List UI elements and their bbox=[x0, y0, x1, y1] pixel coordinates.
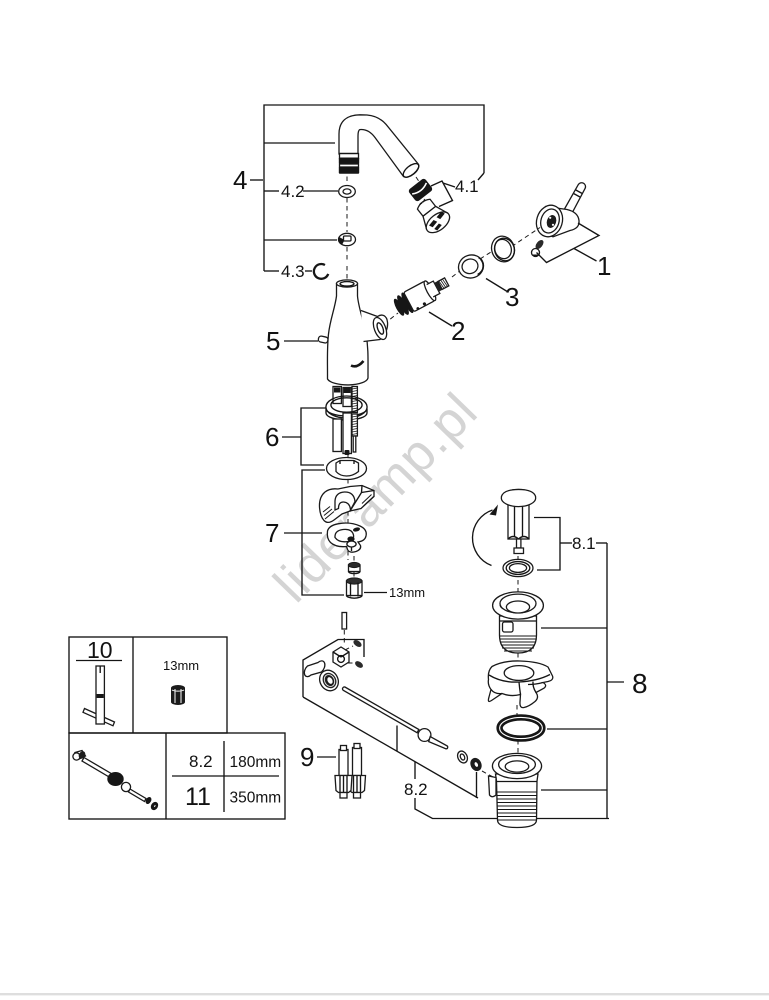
svg-text:1: 1 bbox=[597, 251, 611, 281]
svg-text:5: 5 bbox=[266, 326, 280, 356]
svg-text:3: 3 bbox=[505, 282, 519, 312]
svg-text:350mm: 350mm bbox=[230, 790, 282, 807]
svg-text:7: 7 bbox=[265, 518, 279, 548]
svg-text:4: 4 bbox=[233, 165, 247, 195]
svg-text:4.1: 4.1 bbox=[455, 177, 479, 196]
svg-text:8: 8 bbox=[632, 668, 648, 699]
svg-text:8.2: 8.2 bbox=[189, 752, 213, 771]
svg-text:4.3: 4.3 bbox=[281, 262, 305, 281]
svg-text:13mm: 13mm bbox=[389, 585, 425, 600]
svg-text:180mm: 180mm bbox=[230, 754, 282, 771]
svg-text:10: 10 bbox=[87, 637, 113, 663]
svg-text:6: 6 bbox=[265, 422, 279, 452]
svg-text:9: 9 bbox=[300, 742, 314, 772]
svg-text:8.2: 8.2 bbox=[404, 780, 428, 799]
svg-text:13mm: 13mm bbox=[163, 658, 199, 673]
svg-text:8.1: 8.1 bbox=[572, 534, 596, 553]
svg-text:2: 2 bbox=[451, 316, 465, 346]
svg-text:11: 11 bbox=[185, 783, 211, 811]
svg-text:4.2: 4.2 bbox=[281, 182, 305, 201]
